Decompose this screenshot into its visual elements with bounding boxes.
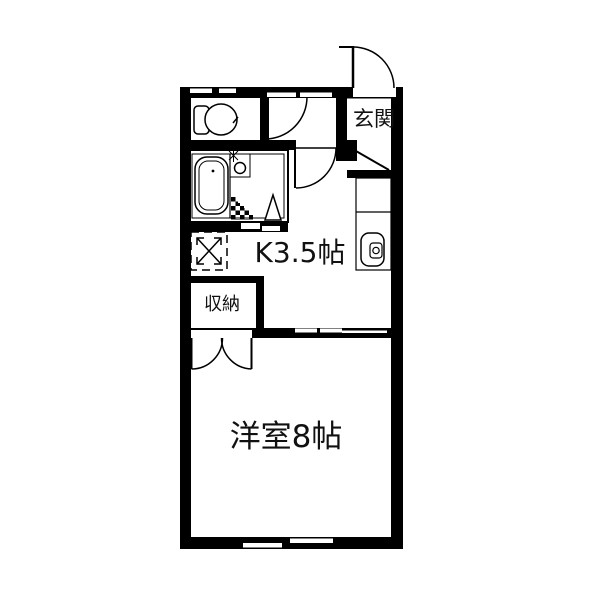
wall-entrance-south — [347, 170, 391, 178]
closet-double-door-icon — [192, 338, 252, 369]
sliding-window-icon — [190, 89, 236, 94]
openings-and-windows — [190, 86, 397, 548]
wall-storage-east — [256, 276, 264, 330]
washer-space-icon — [191, 232, 227, 270]
shower-faucet-icon — [229, 149, 250, 177]
toilet-icon — [194, 104, 238, 135]
floorplan-drawing: 玄関 K3.5帖 収納 洋室8帖 — [0, 0, 600, 600]
unit-bath — [188, 149, 288, 222]
bath-door-gap — [241, 223, 260, 229]
wall-right — [391, 87, 403, 549]
bath-door-triangle-icon — [265, 195, 281, 220]
wall-left — [180, 87, 191, 549]
kitchen-counter — [356, 178, 391, 270]
entrance-doorway-gap — [353, 86, 396, 98]
bathtub-icon — [195, 157, 228, 214]
western-room-label: 洋室8帖 — [230, 419, 343, 455]
wall-storage-north — [180, 276, 264, 283]
entrance-label: 玄関 — [353, 107, 395, 131]
kitchen-sink-icon — [361, 233, 384, 266]
storage-label: 収納 — [204, 294, 240, 315]
hinged-door-icon — [295, 148, 336, 188]
wall-entrance-west — [336, 97, 347, 142]
hinged-door-icon — [265, 97, 307, 139]
drain-grid-icon — [231, 197, 253, 220]
kitchen-label: K3.5帖 — [255, 236, 346, 269]
floorplan-canvas: 玄関 K3.5帖 収納 洋室8帖 — [0, 0, 600, 600]
sliding-window-icon — [267, 93, 332, 98]
storage-doorway-gap — [191, 330, 252, 338]
wall-toilet-south — [180, 140, 296, 150]
bath-door-gap — [262, 226, 280, 231]
entrance-door-icon — [339, 46, 394, 88]
